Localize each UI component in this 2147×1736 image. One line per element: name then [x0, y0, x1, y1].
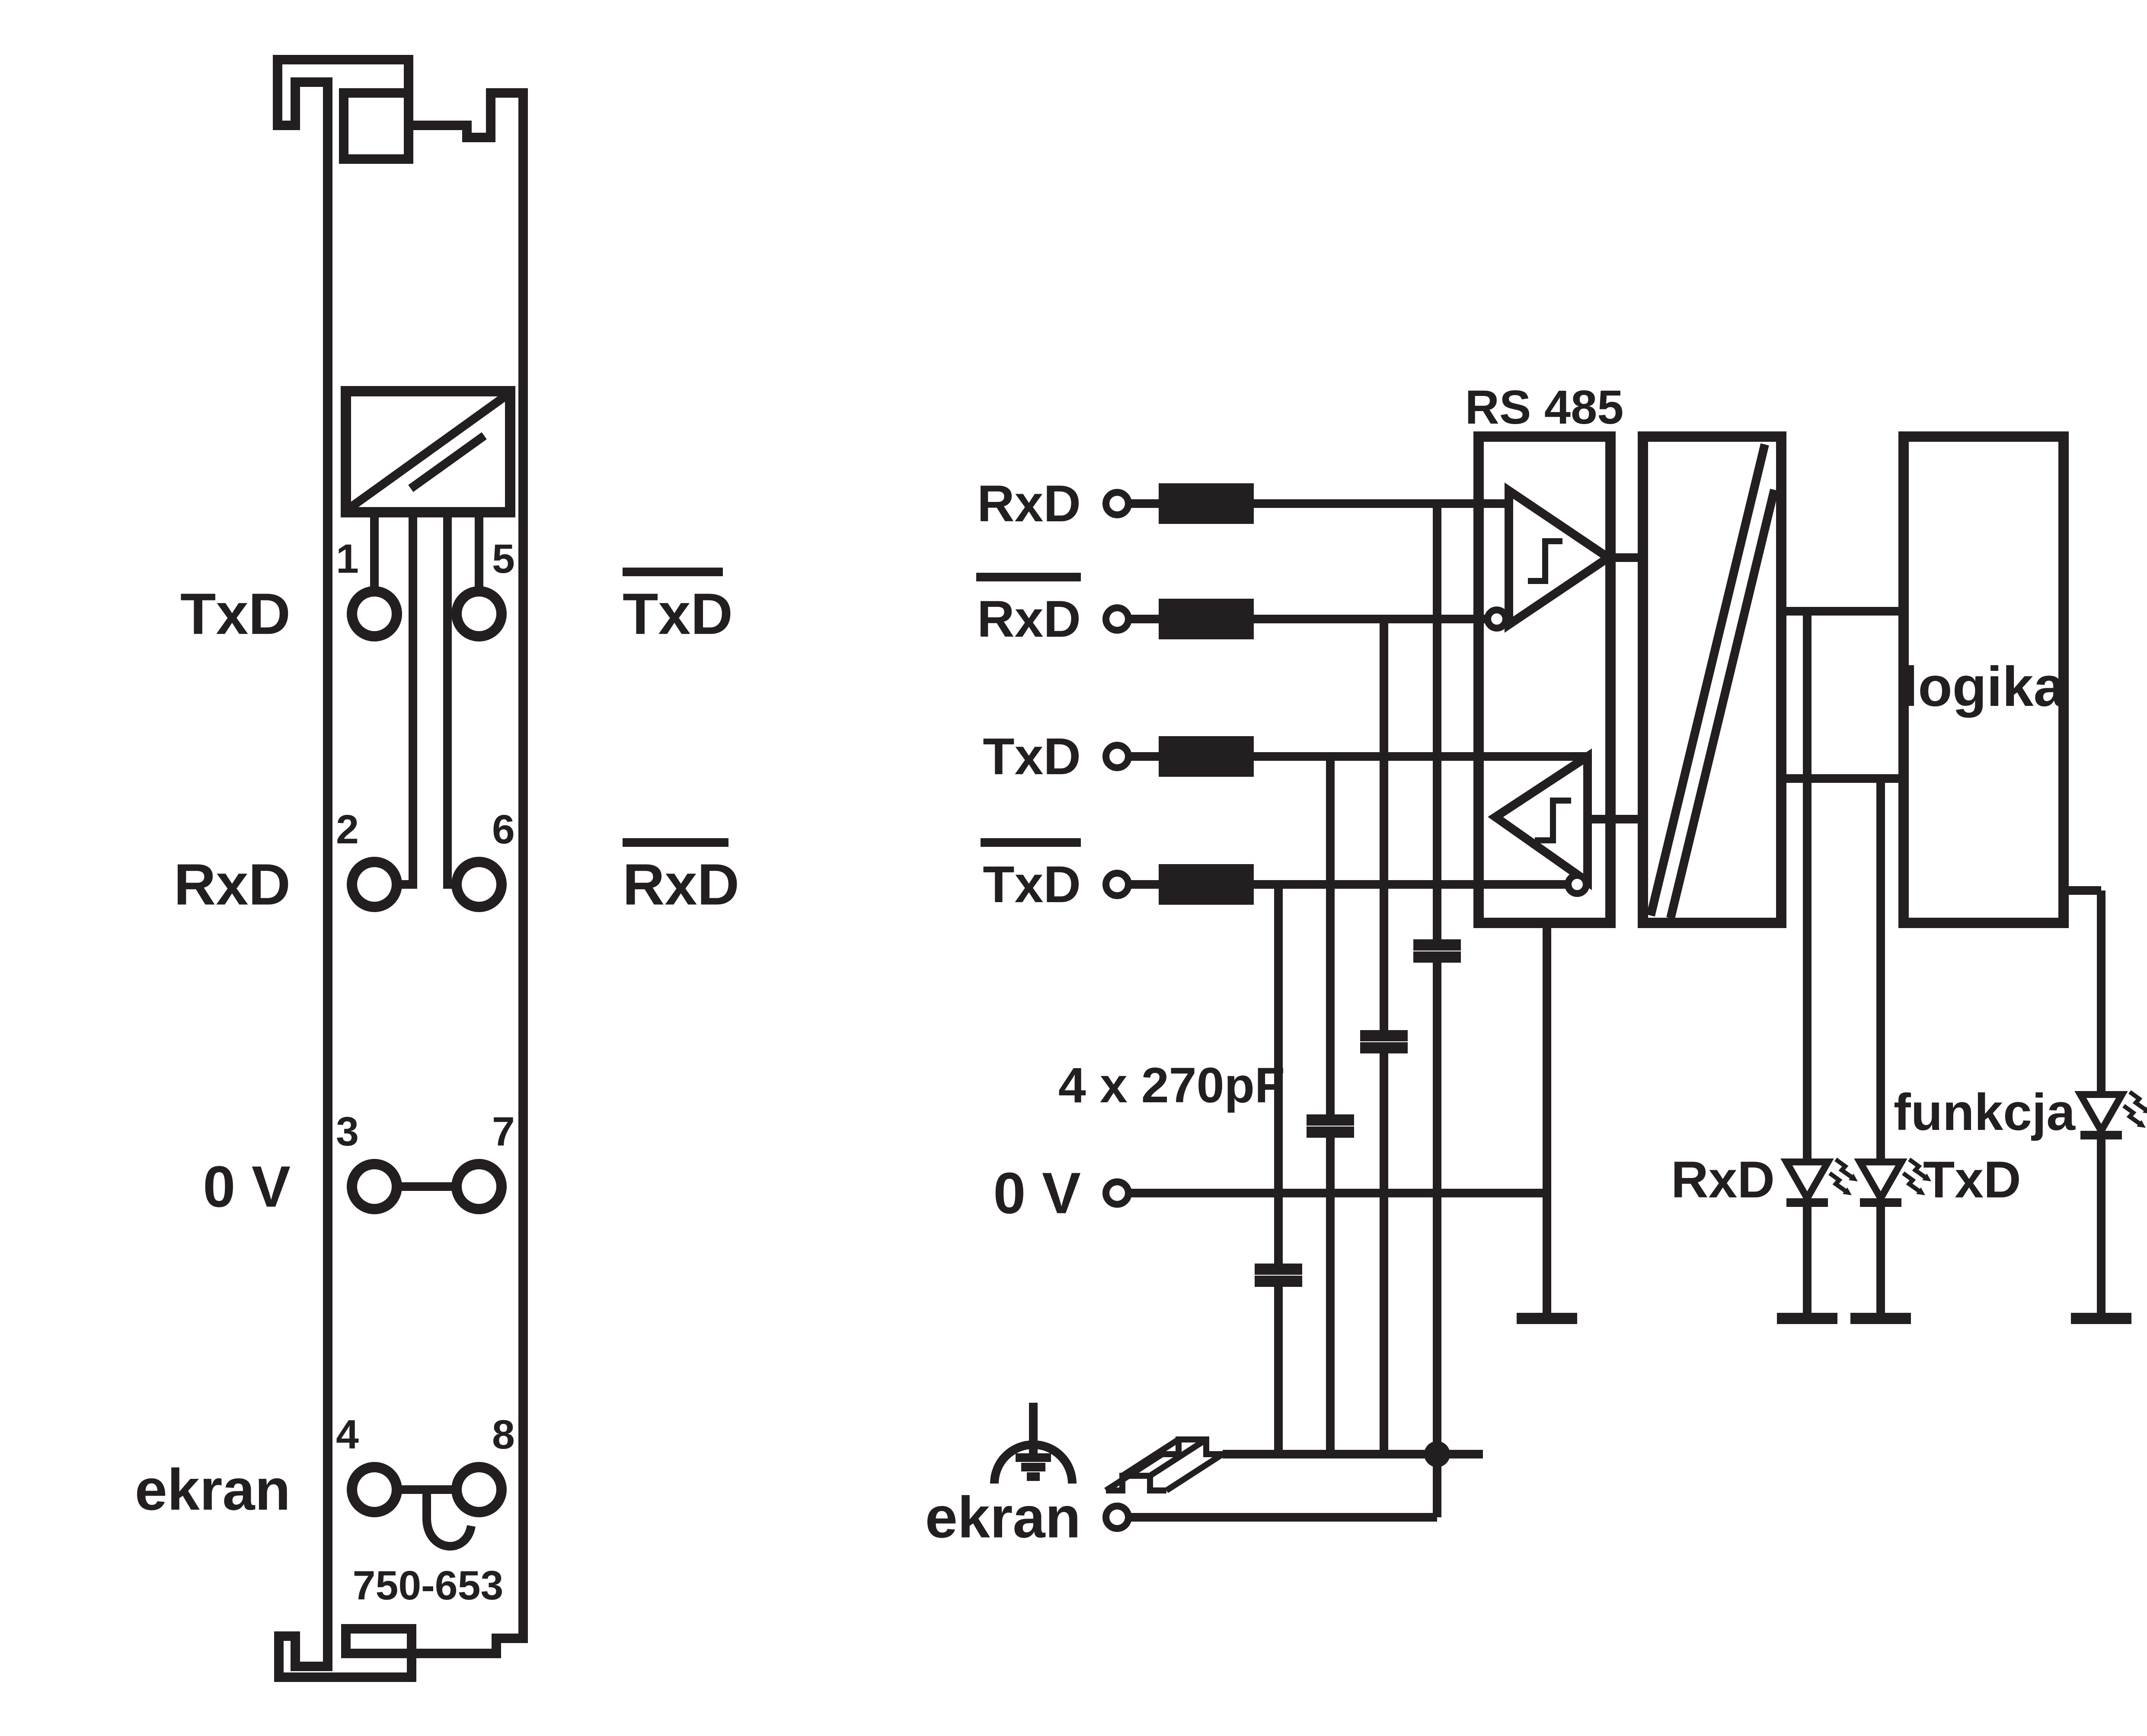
input-terminal-txd	[1106, 745, 1128, 768]
input-label-txd: TxD	[983, 728, 1081, 785]
module-top-contact-slot	[344, 93, 409, 159]
module-isolation-block	[346, 391, 510, 512]
num-6: 6	[492, 807, 515, 852]
num-1: 1	[336, 536, 359, 582]
led-label-funkcja: funkcja	[1894, 1083, 2076, 1141]
num-3: 3	[336, 1109, 359, 1155]
power-label: 0 V	[993, 1161, 1081, 1226]
label-txd: TxD	[180, 581, 291, 647]
wiring-diagram-page: 1 2 3 4 5 6 7 8 TxD RxD 0 V ekran TxD Rx…	[0, 0, 2147, 1736]
input-terminal-rxd-inv	[1106, 608, 1128, 630]
num-2: 2	[336, 807, 359, 852]
led-label-rxd: RxD	[1671, 1151, 1775, 1209]
funkcja-led-icon	[2080, 1092, 2147, 1135]
terminal-2	[352, 862, 397, 907]
zero-volt-row: 0 V	[993, 923, 1577, 1318]
shield-row: ekran	[925, 1485, 1437, 1550]
input-label-rxd-inv: RxD	[977, 590, 1081, 648]
label-0v: 0 V	[203, 1154, 291, 1219]
capacitor-note: 4 x 270pF	[1058, 1058, 1285, 1113]
input-terminal-rxd	[1106, 492, 1128, 515]
isolation-block	[1643, 437, 1781, 923]
rs485-title: RS 485	[1465, 381, 1624, 434]
terminal-5	[457, 591, 502, 636]
filter-resistor-rxd-inv	[1159, 599, 1254, 639]
driver-inverting-bubble	[1568, 875, 1586, 894]
module-terminal-numbers: 1 2 3 4 5 6 7 8	[336, 536, 515, 1458]
shield-rail	[1223, 1441, 1483, 1517]
circuit-schematic: RxD RxD TxD TxD	[925, 381, 2147, 1550]
terminal-6	[457, 862, 502, 907]
rs485-block: RS 485	[1465, 381, 1643, 923]
earth-symbol	[994, 1403, 1072, 1484]
num-5: 5	[492, 536, 515, 582]
module-view: 1 2 3 4 5 6 7 8 TxD RxD 0 V ekran TxD Rx…	[135, 60, 739, 1677]
logic-block: logika	[1902, 437, 2065, 923]
terminal-4	[352, 1467, 397, 1512]
filter-resistor-txd	[1159, 736, 1254, 777]
logic-label: logika	[1902, 655, 2065, 718]
wago-750-653-diagram: 1 2 3 4 5 6 7 8 TxD RxD 0 V ekran TxD Rx…	[0, 0, 2147, 1736]
terminal-8	[457, 1467, 502, 1512]
input-label-rxd: RxD	[977, 475, 1081, 533]
led-funkcja-branch: funkcja	[1894, 890, 2147, 1318]
rxd-led-icon	[1786, 1159, 1858, 1203]
input-terminal-txd-inv	[1106, 873, 1128, 896]
terminal-7	[457, 1164, 502, 1209]
label-rxd: RxD	[174, 852, 291, 917]
receiver-amplifier	[1509, 491, 1608, 625]
zero-volt-terminal	[1106, 1182, 1128, 1204]
led-label-txd: TxD	[1923, 1151, 2021, 1209]
receiver-inverting-bubble	[1488, 610, 1506, 628]
input-rxd-row: RxD	[977, 475, 1509, 533]
input-rxd-inv-row: RxD	[976, 577, 1488, 648]
terminal-1	[352, 591, 397, 636]
module-bottom-rail-slot	[346, 1629, 412, 1653]
module-terminals	[352, 591, 502, 1512]
led-txd-branch: TxD	[1850, 779, 2021, 1318]
filter-resistor-txd-inv	[1159, 864, 1254, 905]
label-rxd-inv: RxD	[623, 852, 739, 917]
shield-terminal	[1106, 1506, 1128, 1529]
input-txd-row: TxD	[983, 728, 1588, 785]
part-number: 750-653	[353, 1563, 504, 1608]
label-ekran: ekran	[135, 1457, 291, 1522]
label-txd-inv: TxD	[623, 581, 733, 647]
shield-label: ekran	[925, 1485, 1081, 1550]
input-label-txd-inv: TxD	[983, 855, 1081, 913]
filter-resistor-rxd	[1159, 483, 1254, 524]
num-8: 8	[492, 1412, 515, 1458]
num-7: 7	[492, 1109, 515, 1155]
num-4: 4	[336, 1412, 359, 1458]
module-labels: TxD RxD 0 V ekran TxD RxD	[135, 572, 739, 1522]
module-wires	[374, 512, 479, 1546]
driver-amplifier	[1495, 756, 1588, 882]
txd-led-icon	[1860, 1159, 1931, 1203]
din-rail-icon	[1106, 1439, 1223, 1490]
emc-capacitors: 4 x 270pF	[1058, 504, 1461, 1454]
terminal-3	[352, 1164, 397, 1209]
